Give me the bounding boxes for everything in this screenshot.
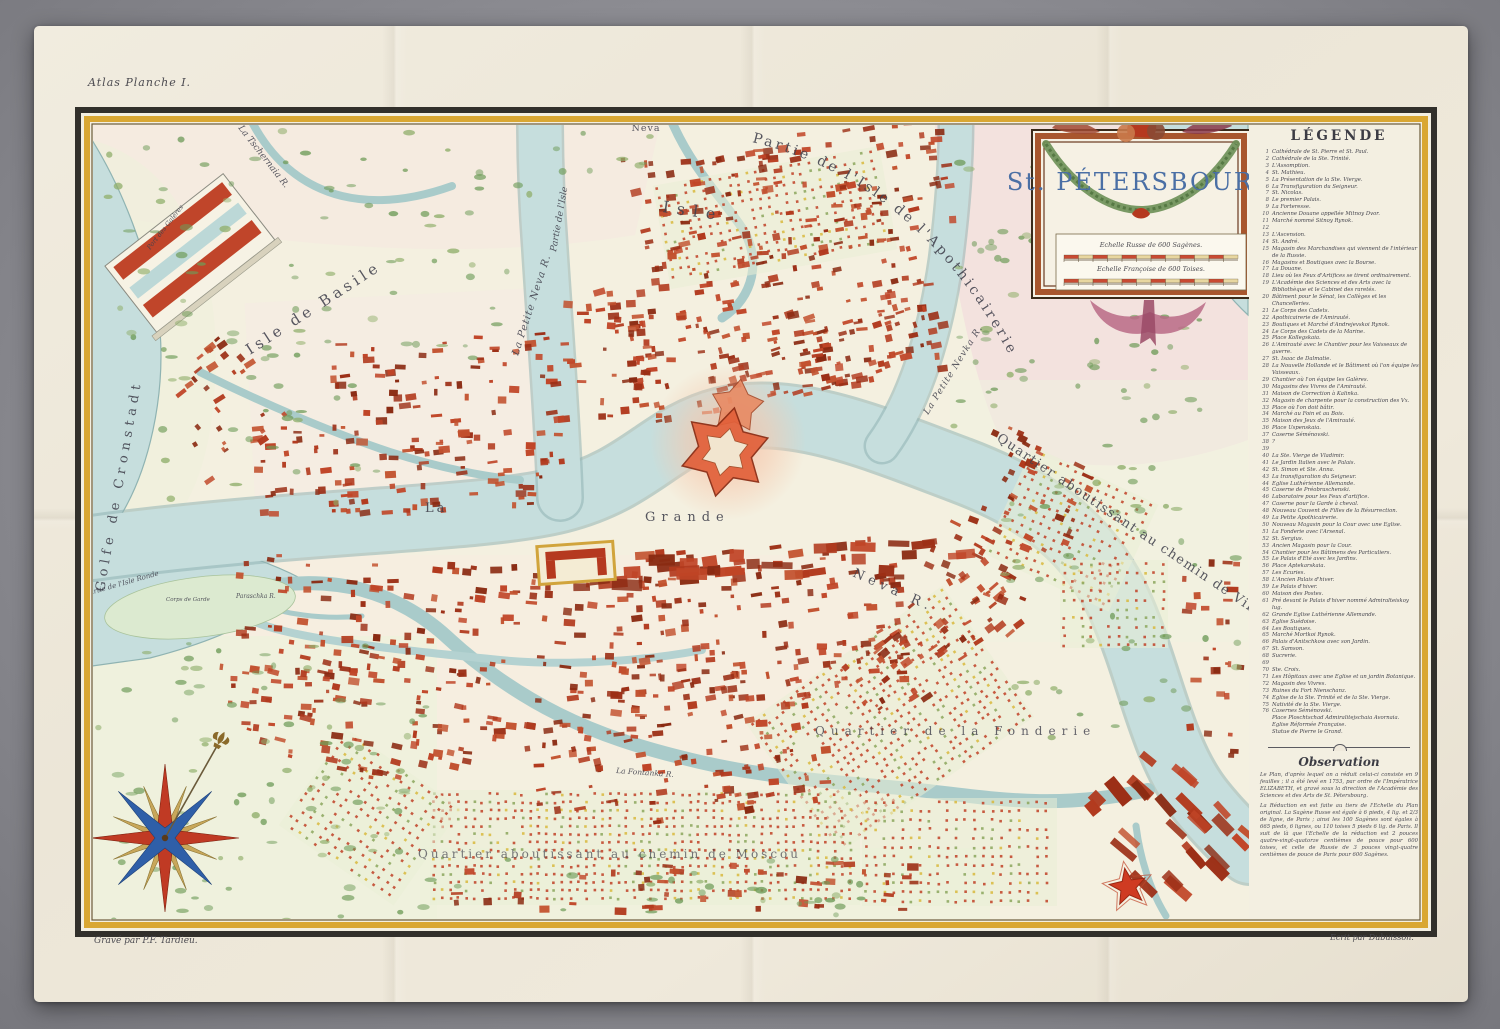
- legend-item: 28La Nouvelle Hollande et le Bâtiment où…: [1258, 363, 1420, 377]
- legend-item: 23Boutiques et Marché d'Andrejevskoi Ryn…: [1258, 322, 1420, 329]
- legend-item: 62Grande Eglise Luthérienne Allemande.: [1258, 612, 1420, 619]
- legend-item: 69: [1258, 660, 1420, 667]
- legend-item: 20Bâtiment pour le Sénat, les Collèges e…: [1258, 294, 1420, 308]
- legend-item: 50Nouveau Magasin pour la Cour avec une …: [1258, 522, 1420, 529]
- legend-item: 15Magasin des Marchandises qui viennent …: [1258, 246, 1420, 260]
- legend-item: 48Nouveau Couvent de Filles de la Résurr…: [1258, 508, 1420, 515]
- legend-item: 13L'Ascension.: [1258, 232, 1420, 239]
- legend-item: 6La Transfiguration du Seigneur.: [1258, 184, 1420, 191]
- legend-item: 11Marché nommé Sitnoy Rynok.: [1258, 218, 1420, 225]
- admiralty: [537, 541, 615, 584]
- legend-items: 1Cathédrale de St. Pierre et St. Paul.2C…: [1258, 149, 1420, 736]
- legend-item: 38?: [1258, 439, 1420, 446]
- legend-item: 41Le Jardin Italien avec le Palais.: [1258, 460, 1420, 467]
- legend-item: 2Cathédrale de la Ste. Trinité.: [1258, 156, 1420, 163]
- legend-item: 63Eglise Suédoise.: [1258, 619, 1420, 626]
- legend-item: 5La Présentation de la Ste. Vierge.: [1258, 177, 1420, 184]
- observation-body: Le Plan, d'après lequel on a réduit celu…: [1258, 772, 1420, 859]
- plate-note: Atlas Planche I.: [88, 76, 191, 89]
- legend-item: 3L'Assomption.: [1258, 163, 1420, 170]
- legend-item: 73Ruines du Fort Nienschanz.: [1258, 688, 1420, 695]
- svg-text:Echelle Russe de 600 Sagènes.: Echelle Russe de 600 Sagènes.: [1099, 241, 1202, 249]
- legend-item: 55Le Palais d'Eté avec les Jardins.: [1258, 556, 1420, 563]
- svg-text:Echelle Françoise de 600 Toise: Echelle Françoise de 600 Toises.: [1096, 265, 1205, 273]
- legend-item: 40La Ste. Vierge de Vladimir.: [1258, 453, 1420, 460]
- legend-item: 35Maison des Jeux de l'Amirauté.: [1258, 418, 1420, 425]
- legend-item: 71Les Hôpitaux avec une Eglise et un jar…: [1258, 674, 1420, 681]
- legend-item: 61Pré devant le Palais d'hiver nommé Adm…: [1258, 598, 1420, 612]
- legend-item: 74Eglise de la Ste. Trinité et de la Ste…: [1258, 695, 1420, 702]
- legend-item: Eglise Réformée Française.: [1258, 722, 1420, 729]
- legend-item: 65Marché Mortkoi Rynok.: [1258, 632, 1420, 639]
- map-label-grande: Grande: [645, 510, 730, 525]
- legend-item: 70Ste. Croix.: [1258, 667, 1420, 674]
- legend-item: 49La Petite Apothicairerie.: [1258, 515, 1420, 522]
- legend-item: 29Chantier où l'on équipe les Galères.: [1258, 377, 1420, 384]
- legend-item: 42St. Simon et Ste. Anna.: [1258, 467, 1420, 474]
- map-label-corps-garde: Corps de Garde: [166, 597, 211, 603]
- legend-item: 14St. André.: [1258, 239, 1420, 246]
- map-label-la: La: [425, 501, 447, 516]
- legend-item: 53Ancien Magasin pour la Cour.: [1258, 543, 1420, 550]
- legend-item: 19L'Académie des Sciences et des Arts av…: [1258, 280, 1420, 294]
- legend-item: 68Sucrerie.: [1258, 653, 1420, 660]
- legend-item: 56Place Aptekarskaia.: [1258, 563, 1420, 570]
- map-label-moscou: Quartier aboutissant au chemin de Moscou: [418, 847, 801, 861]
- observation-paragraph: Le Plan, d'après lequel on a réduit celu…: [1260, 772, 1418, 800]
- legend-item: 37Caserne Séménovski.: [1258, 432, 1420, 439]
- legend-item: 43La transfiguration du Seigneur.: [1258, 474, 1420, 481]
- legend-item: 26L'Amirauté avec le Chantier pour les V…: [1258, 342, 1420, 356]
- legend-item: 59Le Palais d'hiver.: [1258, 584, 1420, 591]
- legend-item: Statue de Pierre le Grand.: [1258, 729, 1420, 736]
- peter-paul-fortress: [650, 364, 806, 520]
- legend-item: 7St. Nicolas.: [1258, 190, 1420, 197]
- legend-item: 32Magasin de charpente pour la construct…: [1258, 398, 1420, 405]
- legend-item: 21Le Corps des Cadets.: [1258, 308, 1420, 315]
- observation-paragraph: La Réduction en est faite au tiers de l'…: [1260, 803, 1418, 859]
- legend-item: 1Cathédrale de St. Pierre et St. Paul.: [1258, 149, 1420, 156]
- legend-item: 60Maison des Postes.: [1258, 591, 1420, 598]
- legend-item: 58L'Ancien Palais d'hiver.: [1258, 577, 1420, 584]
- legend-item: 16Magasins et Boutiques avec la Bourse.: [1258, 260, 1420, 267]
- legend-item: 57Les Ecuries.: [1258, 570, 1420, 577]
- legend-divider: [1268, 743, 1410, 751]
- legend-item: 52St. Sergius.: [1258, 536, 1420, 543]
- legend-item: 12: [1258, 225, 1420, 232]
- legend-item: 31Maison de Correction à Kalinka.: [1258, 391, 1420, 398]
- writer-credit: Ecrit par Dubuisson.: [1330, 933, 1414, 942]
- legend-item: 72Magasin des Vivres.: [1258, 681, 1420, 688]
- legend-title: LÉGENDE: [1258, 128, 1420, 144]
- legend-item: 66Palais d'Anitschkow avec son Jardin.: [1258, 639, 1420, 646]
- legend-item: 67St. Samson.: [1258, 646, 1420, 653]
- map-label-paraschka: Paraschka R.: [235, 593, 276, 600]
- legend-item: 24Le Corps des Cadets de la Marine.: [1258, 329, 1420, 336]
- legend-item: 8Le premier Palais.: [1258, 197, 1420, 204]
- legend-item: 22Apothicairerie de l'Amirauté.: [1258, 315, 1420, 322]
- legend-item: 30Magasins des Vivres de l'Amirauté.: [1258, 384, 1420, 391]
- legend-item: 76Casernes Séménovski.: [1258, 708, 1420, 715]
- map-label-fonderie: Quartier de la Fonderie: [815, 724, 1096, 738]
- legend-item: 39: [1258, 446, 1420, 453]
- legend-item: 4St. Mathieu.: [1258, 170, 1420, 177]
- legend-item: 45Caserne de Préobraschenski.: [1258, 487, 1420, 494]
- engraver-credit: Gravé par P.F. Tardieu.: [94, 936, 198, 946]
- legend-panel: LÉGENDE 1Cathédrale de St. Pierre et St.…: [1258, 124, 1420, 922]
- legend-item: 51La Fonderie avec l'Arsenal.: [1258, 529, 1420, 536]
- observation-title: Observation: [1258, 755, 1420, 769]
- map-title: St. PÉTERSBOURG: [1007, 167, 1275, 196]
